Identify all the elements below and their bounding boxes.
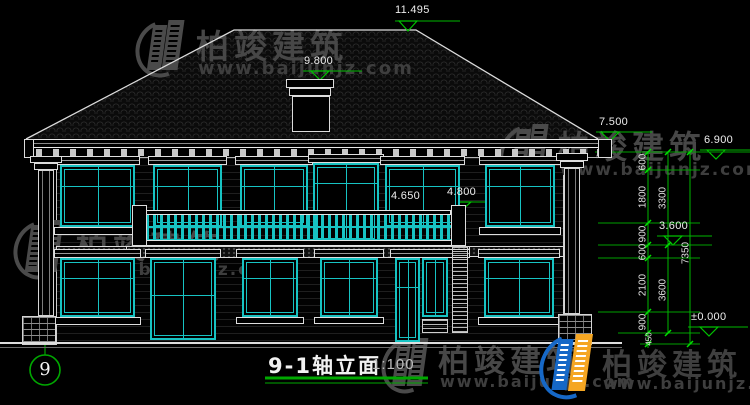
watermark-bottom-right: 柏竣建筑 www.baijunjz.com xyxy=(0,0,750,405)
brand-logo-blue xyxy=(540,334,598,400)
watermark-url: www.baijunjz.com xyxy=(603,374,750,393)
cad-elevation-drawing: 柏竣建筑 www.baijunjz.com 柏竣建筑 www.baijunjz.… xyxy=(0,0,750,405)
